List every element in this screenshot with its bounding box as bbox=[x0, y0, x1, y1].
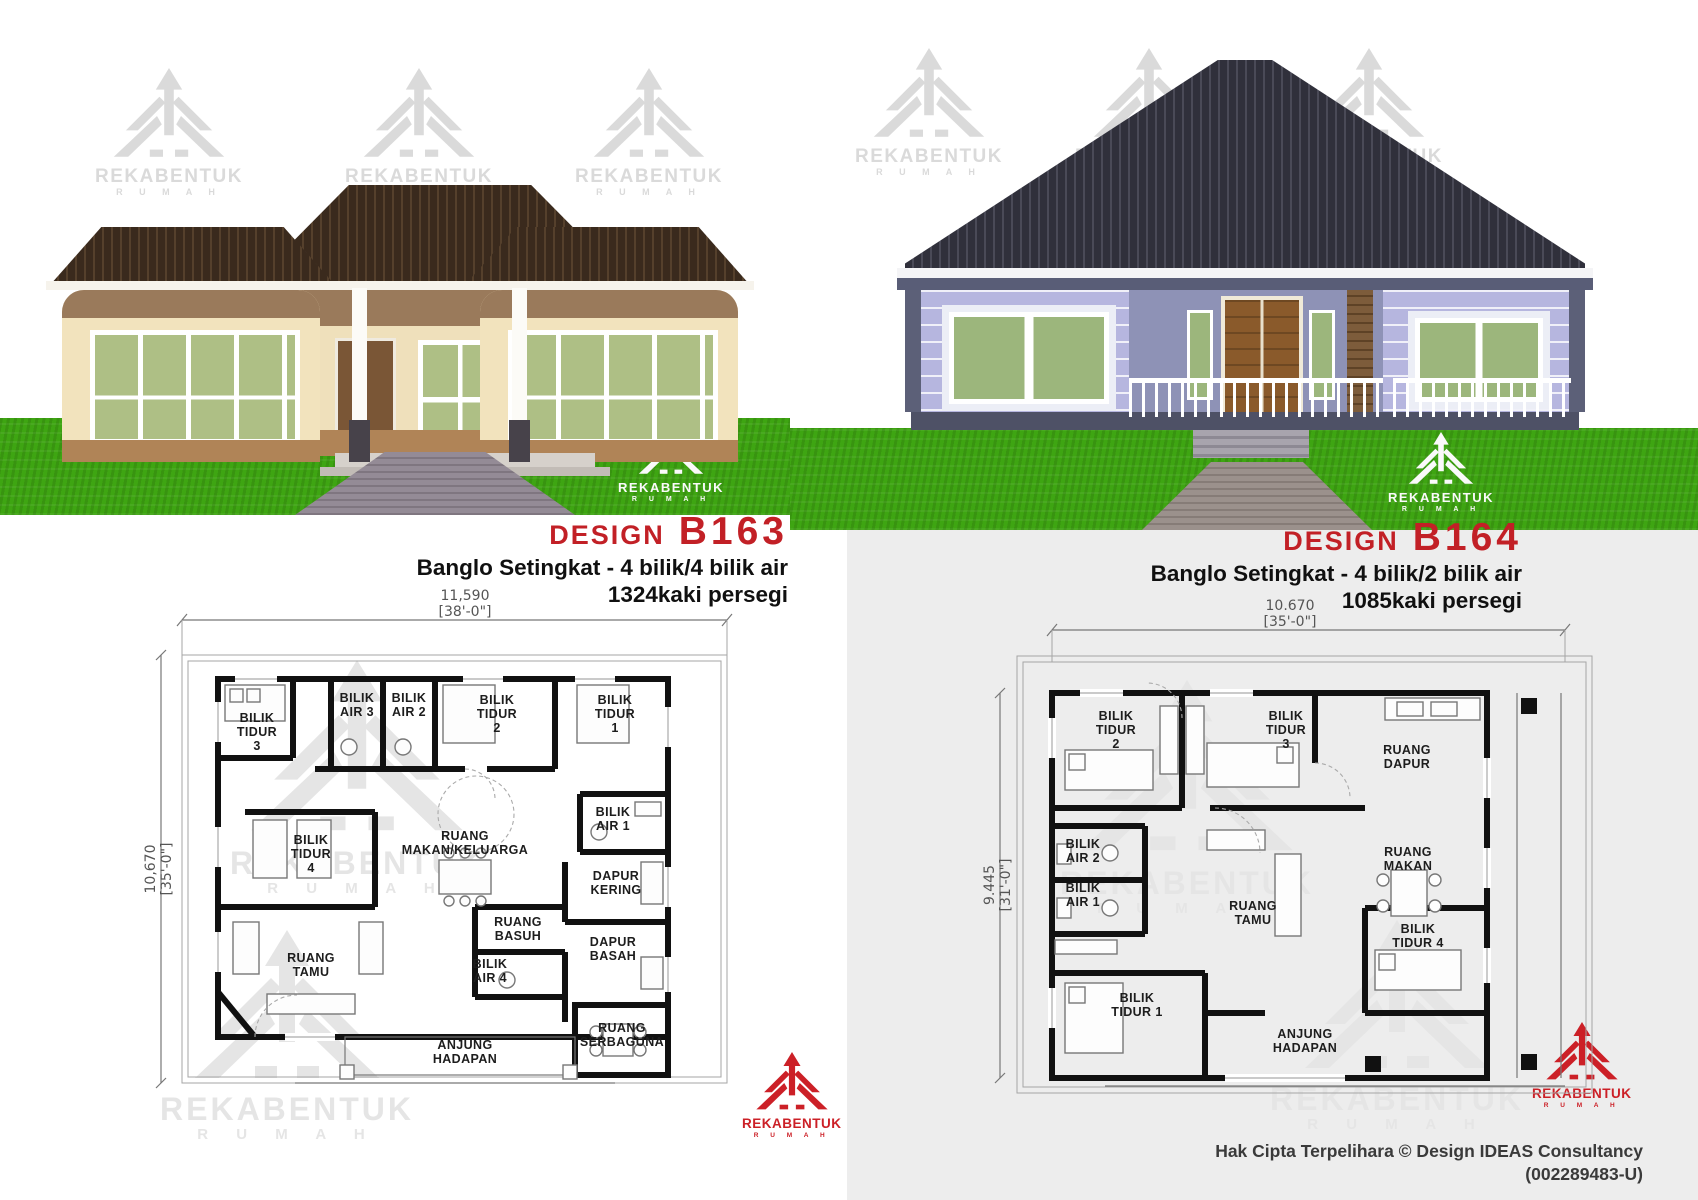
room-label-anjung-hadapan: ANJUNGHADAPAN bbox=[433, 1038, 497, 1066]
logo-brand: REKABENTUK bbox=[742, 1117, 842, 1131]
wall-band bbox=[62, 290, 320, 318]
design-area: 1324kaki persegi bbox=[417, 582, 788, 608]
dim-left-ft: [35'-0"] bbox=[159, 843, 175, 896]
design-code: B164 bbox=[1413, 516, 1522, 559]
column-base bbox=[509, 420, 530, 462]
design-area: 1085kaki persegi bbox=[1151, 588, 1522, 614]
dim-left-mm: 9.445 bbox=[982, 865, 998, 905]
room-label-bilik-tidur-1: BILIKTIDUR 1 bbox=[1111, 991, 1162, 1019]
room-label-ruang-tamu: RUANGTAMU bbox=[1229, 899, 1277, 927]
room-label-bilik-air-1: BILIKAIR 1 bbox=[1066, 881, 1101, 909]
grass-logo: REKABENTUK R U M A H bbox=[1388, 432, 1494, 513]
window bbox=[949, 312, 1109, 404]
room-label-bilik-air-2: BILIKAIR 2 bbox=[1066, 837, 1101, 865]
design-title: DESIGNB164 bbox=[1151, 516, 1522, 560]
title-block-b164: DESIGNB164 Banglo Setingkat - 4 bilik/2 … bbox=[1151, 516, 1522, 614]
corner-pier bbox=[905, 290, 921, 412]
design-code: B163 bbox=[679, 510, 788, 553]
rekabentuk-logo-icon bbox=[589, 68, 709, 164]
eave-band bbox=[897, 278, 1593, 290]
dimension-left: 9.445 [31'-0"] bbox=[982, 688, 1014, 1083]
copyright-line: Hak Cipta Terpelihara © Design IDEAS Con… bbox=[1215, 1140, 1643, 1163]
room-label-ruang-basuh: RUANGBASUH bbox=[494, 915, 542, 943]
logo-sub: R U M A H bbox=[1388, 506, 1494, 513]
rekabentuk-logo-icon bbox=[1405, 432, 1477, 488]
room-label-ruang-dapur: RUANGDAPUR bbox=[1383, 743, 1431, 771]
registration-number: (002289483-U) bbox=[1215, 1163, 1643, 1186]
porch-column bbox=[512, 288, 527, 420]
room-label-dapur-basah: DAPURBASAH bbox=[590, 935, 636, 963]
room-label-ruang-serbaguna: RUANGSERBAGUNA bbox=[580, 1021, 664, 1049]
design-title: DESIGNB163 bbox=[417, 510, 788, 554]
design-subtitle: Banglo Setingkat - 4 bilik/4 bilik air bbox=[417, 555, 788, 581]
watermark-sub: R U M A H bbox=[160, 1127, 414, 1142]
copyright-notice: Hak Cipta Terpelihara © Design IDEAS Con… bbox=[1215, 1140, 1643, 1186]
room-label-anjung-hadapan: ANJUNGHADAPAN bbox=[1273, 1027, 1337, 1055]
logo-sub: R U M A H bbox=[1532, 1103, 1632, 1110]
design-word: DESIGN bbox=[1283, 526, 1399, 556]
poster-root: REKABENTUK R U M A H REKABENTUK R U M A … bbox=[0, 0, 1698, 1200]
render-b164: REKABENTUK R U M A H REKABENTUK R U M A … bbox=[790, 0, 1698, 530]
room-label-ruang-makan-keluarga: RUANGMAKAN/KELUARGA bbox=[402, 829, 528, 857]
watermark-sub: R U M A H bbox=[1270, 1117, 1524, 1132]
logo-sub: R U M A H bbox=[618, 496, 724, 503]
dimension-left: 10,670 [35'-0"] bbox=[143, 650, 175, 1088]
room-label-bilik-tidur-4: BILIKTIDUR 4 bbox=[1392, 922, 1443, 950]
logo-brand: REKABENTUK bbox=[618, 481, 724, 494]
rekabentuk-logo-icon bbox=[359, 68, 479, 164]
roof-left-wing bbox=[50, 227, 335, 285]
floor-plan-b164: 10.670 [35'-0"] 9.445 [31'-0"] bbox=[905, 558, 1675, 1103]
left-wing-wall bbox=[62, 290, 320, 462]
bay-window bbox=[508, 330, 718, 444]
render-b163: REKABENTUK R U M A H REKABENTUK R U M A … bbox=[0, 0, 790, 515]
room-label-bilik-tidur-2: BILIKTIDUR2 bbox=[1096, 709, 1136, 751]
watermark-brand: REKABENTUK bbox=[345, 167, 493, 186]
wall-base bbox=[62, 440, 320, 462]
room-label-ruang-makan: RUANGMAKAN bbox=[1384, 845, 1433, 873]
watermark-logo: REKABENTUK R U M A H bbox=[345, 68, 493, 197]
steps bbox=[1193, 430, 1309, 458]
logo-sub: R U M A H bbox=[742, 1133, 842, 1140]
floor-plan-b163: 11,590 [38'-0"] 10,670 [35'-0"] bbox=[135, 562, 860, 1107]
dim-top-ft: [35'-0"] bbox=[1264, 614, 1317, 630]
logo-brand: REKABENTUK bbox=[1388, 491, 1494, 504]
fascia bbox=[897, 268, 1593, 278]
watermark-brand: REKABENTUK bbox=[575, 167, 723, 186]
bay-window bbox=[90, 330, 300, 444]
room-label-bilik-air-1: BILIKAIR 1 bbox=[596, 805, 631, 833]
rekabentuk-logo-icon bbox=[109, 68, 229, 164]
roof bbox=[905, 60, 1585, 272]
room-label-ruang-tamu: RUANGTAMU bbox=[287, 951, 335, 979]
house-illustration-b164 bbox=[905, 60, 1585, 432]
fascia bbox=[461, 281, 754, 290]
dim-left-ft: [31'-0"] bbox=[998, 859, 1014, 912]
house-illustration-b163 bbox=[50, 185, 750, 475]
column-base bbox=[349, 420, 370, 462]
watermark-brand: REKABENTUK bbox=[95, 167, 243, 186]
room-label-bilik-air-3: BILIKAIR 3 bbox=[340, 691, 375, 719]
room-label-dapur-kering: DAPURKERING bbox=[590, 869, 641, 897]
room-label-bilik-tidur-3: BILIKTIDUR3 bbox=[237, 711, 277, 753]
porch-railing bbox=[1129, 378, 1383, 417]
left-wall bbox=[919, 290, 1129, 412]
dim-left-mm: 10,670 bbox=[143, 845, 159, 894]
room-label-bilik-air-2: BILIKAIR 2 bbox=[392, 691, 427, 719]
title-block-b163: DESIGNB163 Banglo Setingkat - 4 bilik/4 … bbox=[417, 510, 788, 608]
design-word: DESIGN bbox=[549, 520, 665, 550]
porch-railing bbox=[1393, 378, 1571, 417]
porch-column bbox=[352, 288, 367, 420]
fascia bbox=[46, 281, 339, 290]
bay-wall bbox=[218, 992, 255, 1037]
watermark-logo: REKABENTUK R U M A H bbox=[575, 68, 723, 197]
design-subtitle: Banglo Setingkat - 4 bilik/2 bilik air bbox=[1151, 561, 1522, 587]
corner-pier bbox=[1569, 290, 1585, 412]
room-label-bilik-air-4: BILIKAIR 4 bbox=[473, 957, 508, 985]
watermark-logo: REKABENTUK R U M A H bbox=[95, 68, 243, 197]
